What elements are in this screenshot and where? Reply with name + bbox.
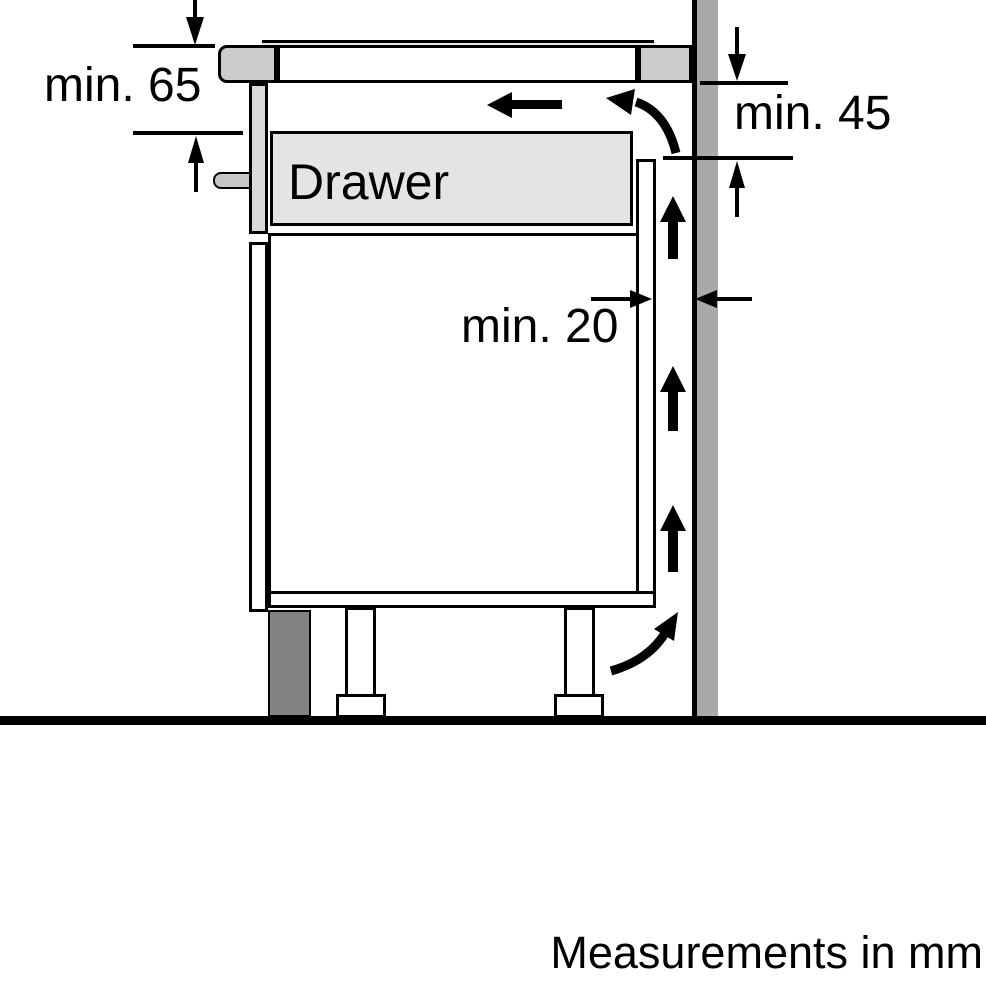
dimension-arrow-up-icon: [188, 136, 204, 163]
drawer-label: Drawer: [288, 157, 449, 207]
hob-body: [277, 45, 638, 83]
cabinet-leg-front: [345, 607, 376, 697]
plinth-toe-kick: [268, 610, 311, 717]
units-footnote: Measurements in mm: [0, 930, 983, 975]
drawer-handle: [213, 172, 254, 189]
drawer-front-panel: [249, 83, 268, 234]
cabinet-door-panel: [249, 242, 268, 612]
cabinet-bottom-panel: [268, 591, 656, 608]
dimension-label-min-45: min. 45: [734, 90, 891, 138]
cabinet-leg-rear: [564, 607, 595, 697]
airflow-up-arrow-1: [660, 196, 686, 259]
airflow-up-arrow-2: [660, 366, 686, 431]
floor-line: [0, 716, 986, 725]
dimension-arrow-up-icon: [729, 161, 745, 188]
cabinet-interior: [268, 233, 639, 594]
cabinet-foot-rear: [554, 694, 604, 718]
worktop-front-edge: [218, 45, 277, 83]
airflow-up-arrow-3: [660, 505, 686, 572]
dimension-label-min-65: min. 65: [44, 62, 201, 110]
worktop-rear-edge: [638, 45, 692, 83]
hob-glass-panel: [262, 40, 654, 48]
airflow-curved-arrow-bottom: [611, 612, 678, 671]
installation-diagram: min. 65 min. 45 min. 20 Drawer Measureme…: [0, 0, 986, 1000]
cabinet-foot-front: [336, 694, 386, 718]
dimension-label-min-20: min. 20: [461, 303, 618, 351]
dimension-arrow-down-icon: [728, 54, 746, 81]
cabinet-back-panel: [636, 159, 656, 594]
dimension-arrow-down-icon: [186, 17, 204, 45]
airflow-left-arrow: [487, 92, 562, 118]
wall: [697, 0, 718, 716]
